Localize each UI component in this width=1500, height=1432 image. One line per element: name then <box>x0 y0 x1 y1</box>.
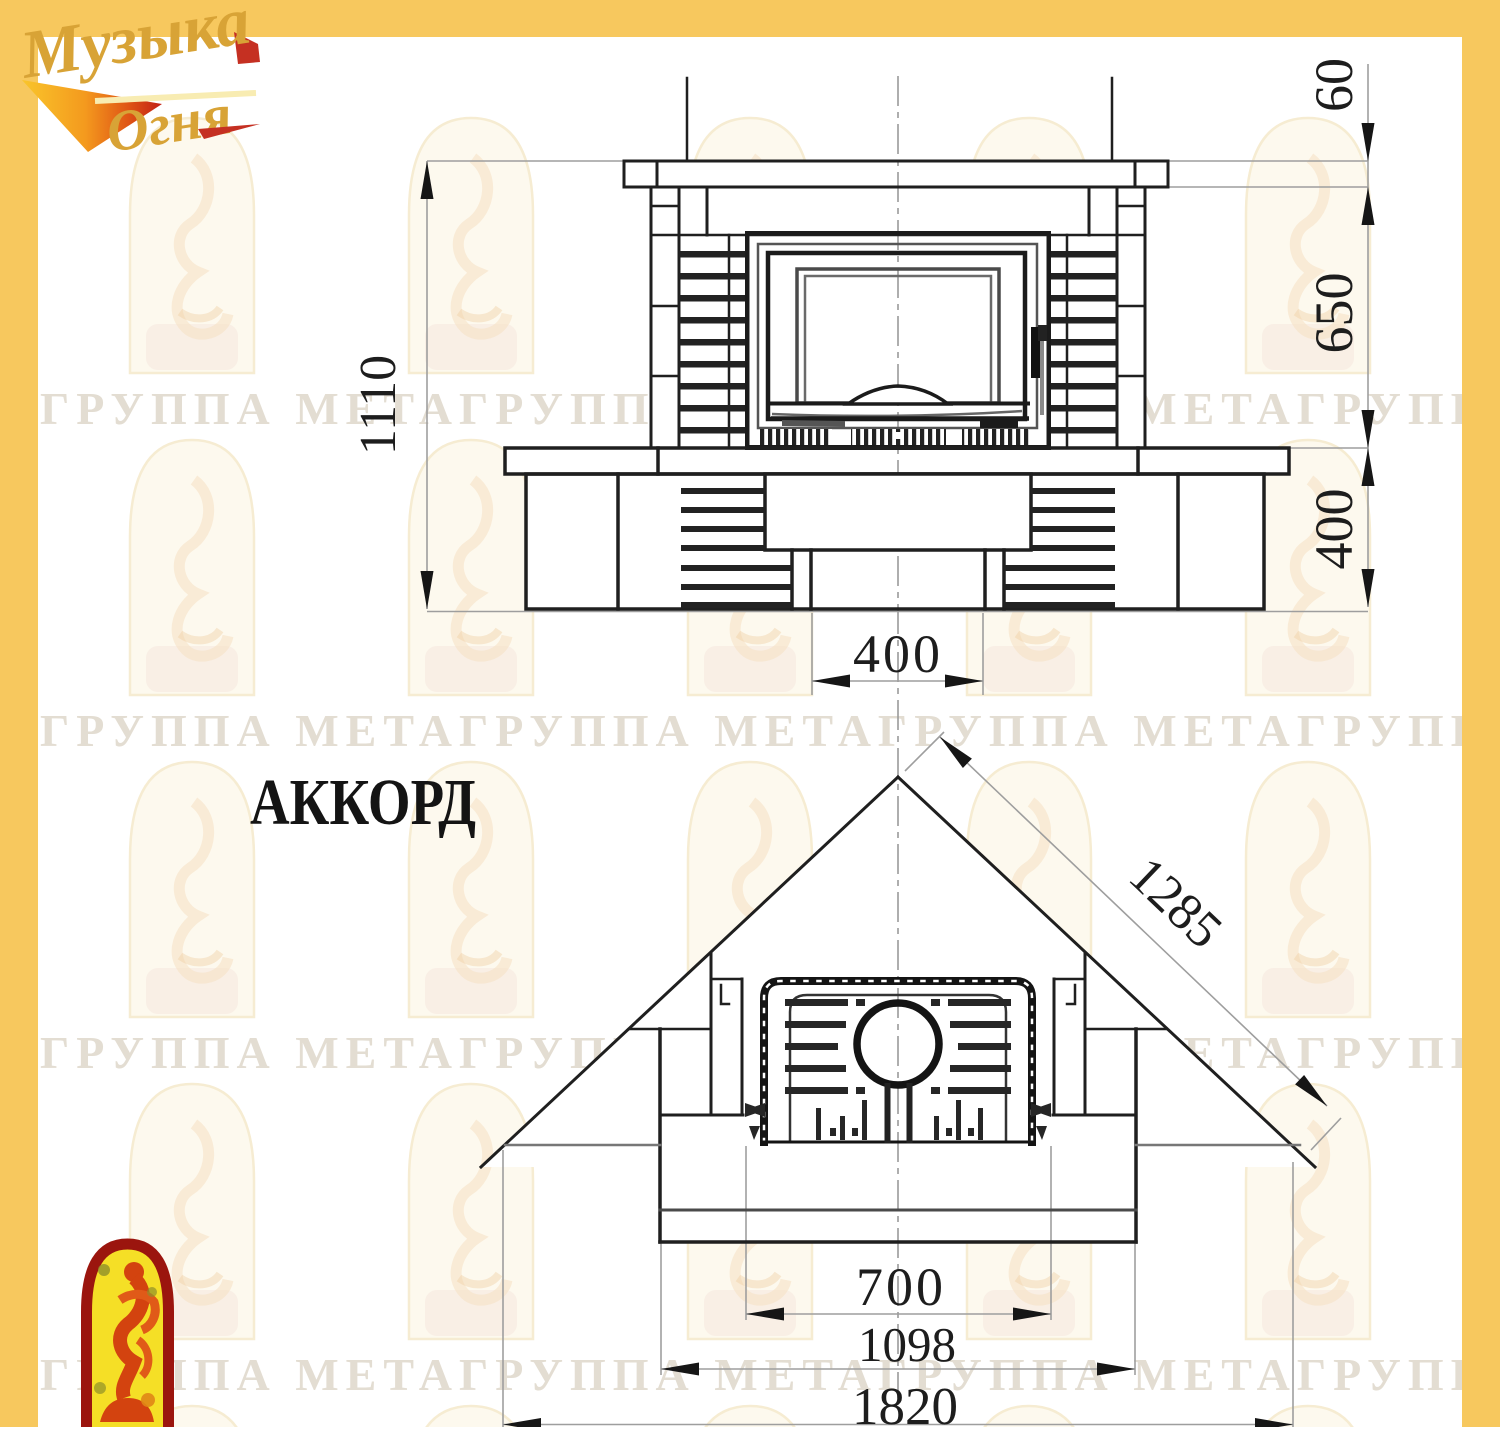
svg-text:1098: 1098 <box>858 1317 956 1372</box>
svg-text:400: 400 <box>853 624 943 684</box>
svg-text:700: 700 <box>856 1257 946 1317</box>
svg-text:ГРУППА МЕТАГРУППА МЕТАГРУППА М: ГРУППА МЕТАГРУППА МЕТАГРУППА МЕТАГРУППА … <box>40 705 1500 756</box>
svg-text:650: 650 <box>1304 273 1364 354</box>
svg-text:1110: 1110 <box>350 355 407 455</box>
svg-text:1820: 1820 <box>852 1378 958 1427</box>
svg-text:400: 400 <box>1304 489 1364 570</box>
svg-text:60: 60 <box>1304 58 1364 112</box>
svg-text:АККОРД: АККОРД <box>250 766 476 839</box>
svg-text:ГРУППА МЕТАГРУППА МЕТАГРУППА М: ГРУППА МЕТАГРУППА МЕТАГРУППА МЕТАГРУППА … <box>40 1349 1500 1400</box>
